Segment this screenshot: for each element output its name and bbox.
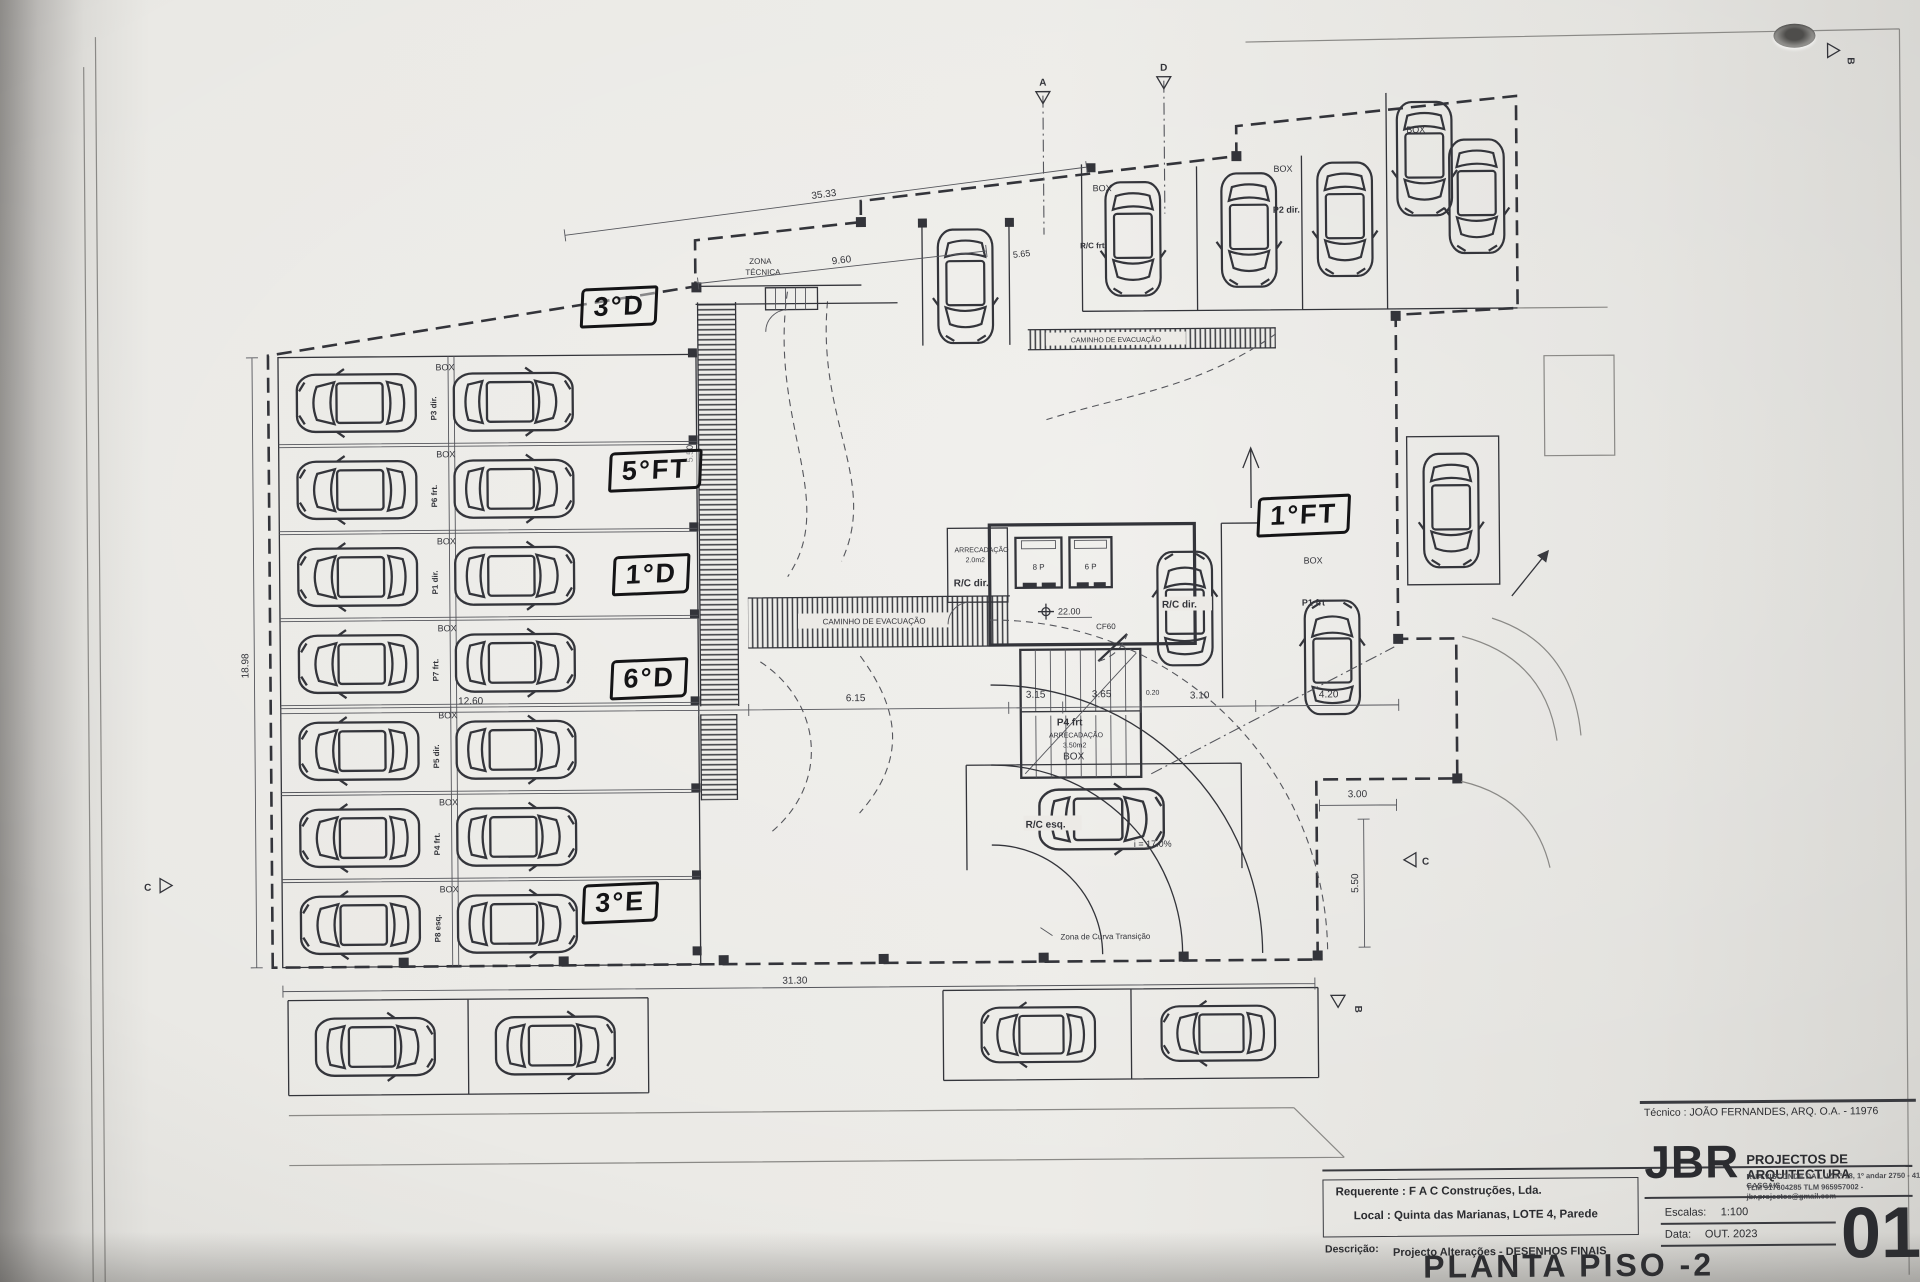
level-marker: 22.00 — [1038, 603, 1092, 619]
stall-code: P4 frt. — [433, 833, 442, 856]
handwritten-unit-label: 3°E — [581, 881, 659, 924]
rc-esq-stall: BOX R/C esq. — [966, 750, 1242, 870]
arrecadacao-area: 2.0m2 — [966, 557, 986, 564]
section-marker-b-top: B — [1845, 57, 1856, 64]
sheet-frame — [83, 23, 1909, 1282]
car-icon — [297, 368, 416, 437]
elevator-label: 6 P — [1085, 562, 1097, 571]
car-icon — [456, 715, 575, 784]
section-marker-b-bottom: B — [1352, 1006, 1363, 1013]
car-icon — [299, 629, 418, 698]
car-icon — [297, 455, 416, 524]
slope-label: i = 17.0% — [1134, 839, 1172, 849]
box-label: BOX — [1273, 164, 1292, 174]
arrecadacao-label: ARRECADAÇÃO — [1049, 730, 1104, 739]
car-icon — [1418, 453, 1484, 567]
handwritten-unit-label: 1°FT — [1256, 494, 1351, 538]
client-box: Requerente : F A C Construções, Lda. Loc… — [1322, 1177, 1638, 1237]
caminho-evacuacao-label: CAMINHO DE EVACUAÇÃO — [823, 617, 926, 627]
stall-code: P3 dir. — [429, 396, 438, 420]
p4-frt-label: P4 frt — [1057, 717, 1083, 728]
drive-curves — [757, 288, 1279, 832]
box-label: BOX — [440, 884, 459, 894]
car-icon — [455, 541, 574, 610]
dim-18-98: 18.98 — [240, 653, 251, 679]
sheet-number: 01 — [1841, 1197, 1920, 1270]
parking-row: BOX P5 dir. — [299, 709, 575, 785]
dim-3-00: 3.00 — [1348, 789, 1368, 800]
top-right-parking: BOX BOX BOX R/C frt P2 dir. — [1079, 92, 1518, 311]
box-label: BOX — [436, 449, 455, 459]
stall-code: P8 esq. — [433, 914, 442, 942]
car-icon — [300, 803, 419, 872]
arrecadacao-area: 3.50m2 — [1063, 742, 1087, 749]
box-label: BOX — [438, 623, 457, 633]
car-icon — [454, 367, 573, 436]
curva-label: Zona de Curva Transição — [1060, 932, 1150, 942]
ramp-hatch-vertical — [698, 302, 740, 800]
parking-row: BOX P8 esq. — [301, 883, 577, 959]
box-label: BOX — [438, 710, 457, 720]
top-entry-stall — [922, 222, 1010, 346]
car-icon — [1312, 162, 1378, 276]
data-value: OUT. 2023 — [1705, 1228, 1758, 1240]
zona-tecnica-label: ZONA — [749, 257, 772, 266]
box-label: BOX — [437, 536, 456, 546]
rc-dir-stall: R/C dir. — [1151, 448, 1261, 699]
section-marker-c-left: C — [144, 883, 151, 894]
elevator-label: 8 P — [1033, 563, 1045, 572]
level-value: 22.00 — [1058, 606, 1081, 616]
dim-0-20: 0.20 — [1146, 690, 1160, 697]
car-icon — [316, 1012, 435, 1081]
parking-row: BOX P4 frt. — [300, 796, 576, 872]
dim-6-15: 6.15 — [846, 693, 866, 704]
car-icon — [454, 454, 573, 523]
dim-5-65: 5.65 — [1012, 248, 1031, 260]
dim-3-10: 3.10 — [1190, 690, 1210, 701]
car-icon — [1391, 102, 1457, 216]
dim-3-65: 3.65 — [1092, 689, 1112, 700]
floor-plan-svg: BOX P3 dir. BOX P6 frt. BOX P1 dir. — [0, 0, 1920, 1282]
small-stair — [765, 287, 817, 331]
local-line: Local : Quinta das Marianas, LOTE 4, Par… — [1354, 1208, 1598, 1222]
section-marker-c-right: C — [1422, 857, 1429, 868]
arrecadacao-label: ARRECADAÇÃO — [954, 545, 1009, 554]
handwritten-unit-label: 5°FT — [608, 449, 703, 493]
drawing-sheet: BOX P3 dir. BOX P6 frt. BOX P1 dir. — [0, 0, 1920, 1282]
drawing-title: PLANTA PISO -2 — [1423, 1246, 1714, 1282]
car-icon — [299, 716, 418, 785]
handwritten-unit-label: 3°D — [580, 285, 659, 328]
stall-code: P1 dir. — [431, 570, 440, 594]
box-label: BOX — [435, 362, 454, 372]
car-icon — [301, 890, 420, 959]
rc-frt-label: R/C frt — [1080, 241, 1105, 250]
zona-tecnica-label: TÉCNICA — [745, 268, 781, 277]
curve-ramp: i = 17.0% Zona de Curva Transição — [990, 617, 1397, 955]
stall-code: P6 frt. — [430, 485, 439, 508]
car-icon — [298, 542, 417, 611]
section-marker-a: A — [1039, 78, 1046, 89]
ramp-arrow — [1243, 448, 1259, 508]
elevator: 6 P — [1069, 537, 1111, 587]
car-icon — [456, 628, 575, 697]
dim-9-60: 9.60 — [831, 254, 852, 267]
parking-row: BOX P3 dir. — [297, 361, 573, 437]
dimensions: 35.33 9.60 5.65 5.50 12.60 6.15 3.15 3.6… — [236, 153, 1401, 998]
bottom-outside-parking — [288, 987, 1344, 1165]
descricao-label: Descrição: — [1325, 1243, 1379, 1255]
car-icon — [457, 802, 576, 871]
section-marker-d: D — [1160, 63, 1167, 74]
box-label: BOX — [1063, 751, 1085, 762]
section-markers: A D C C B B — [138, 43, 1864, 1022]
car-icon — [458, 889, 577, 958]
car-icon — [1100, 182, 1166, 296]
rc-dir-room-label: R/C dir. — [954, 578, 989, 589]
car-icon — [1216, 173, 1282, 287]
car-icon — [496, 1011, 615, 1080]
parking-row: BOX P1 dir. — [298, 535, 574, 611]
escala-label: Escalas: — [1665, 1206, 1707, 1218]
elevator: 8 P — [1015, 538, 1061, 588]
dim-4-20: 4.20 — [1319, 689, 1339, 700]
car-icon — [1444, 139, 1510, 253]
photographed-drawing: BOX P3 dir. BOX P6 frt. BOX P1 dir. — [0, 0, 1920, 1282]
ramp-hatch-mid: CAMINHO DE EVACUAÇÃO — [748, 596, 1010, 648]
dim-5-50b: 5.50 — [1350, 873, 1361, 893]
data-label: Data: — [1665, 1229, 1691, 1241]
right-neighbor — [1458, 307, 1618, 868]
ramp-hatch-top: CAMINHO DE EVACUAÇÃO — [1028, 328, 1276, 350]
parking-row: BOX P7 frt. — [299, 622, 575, 698]
right-outside-stall — [1407, 436, 1500, 585]
dim-12-60: 12.60 — [458, 696, 484, 707]
dim-3-15: 3.15 — [1026, 690, 1046, 701]
stall-code: P5 dir. — [432, 744, 441, 768]
handwritten-unit-label: 6°D — [610, 657, 689, 700]
box-label: BOX — [1304, 555, 1323, 565]
box-label: BOX — [439, 797, 458, 807]
rc-dir-car-label: R/C dir. — [1162, 599, 1197, 610]
requerente-line: Requerente : F A C Construções, Lda. — [1335, 1185, 1541, 1199]
parking-row: BOX P6 frt. — [297, 448, 573, 524]
car-icon — [981, 1002, 1095, 1068]
dim-31-30: 31.30 — [782, 976, 808, 987]
escala-value: 1:100 — [1721, 1206, 1749, 1218]
handwritten-unit-label: 1°D — [612, 553, 691, 596]
car-icon — [932, 229, 998, 343]
rc-esq-label: R/C esq. — [1026, 819, 1066, 830]
cf60-label: CF60 — [1096, 622, 1116, 631]
car-icon — [1161, 1000, 1275, 1066]
stall-code: P7 frt. — [431, 659, 440, 682]
tecnico-line: Técnico : JOÃO FERNANDES, ARQ. O.A. - 11… — [1644, 1105, 1878, 1119]
firm-logo: JBR — [1644, 1134, 1739, 1189]
